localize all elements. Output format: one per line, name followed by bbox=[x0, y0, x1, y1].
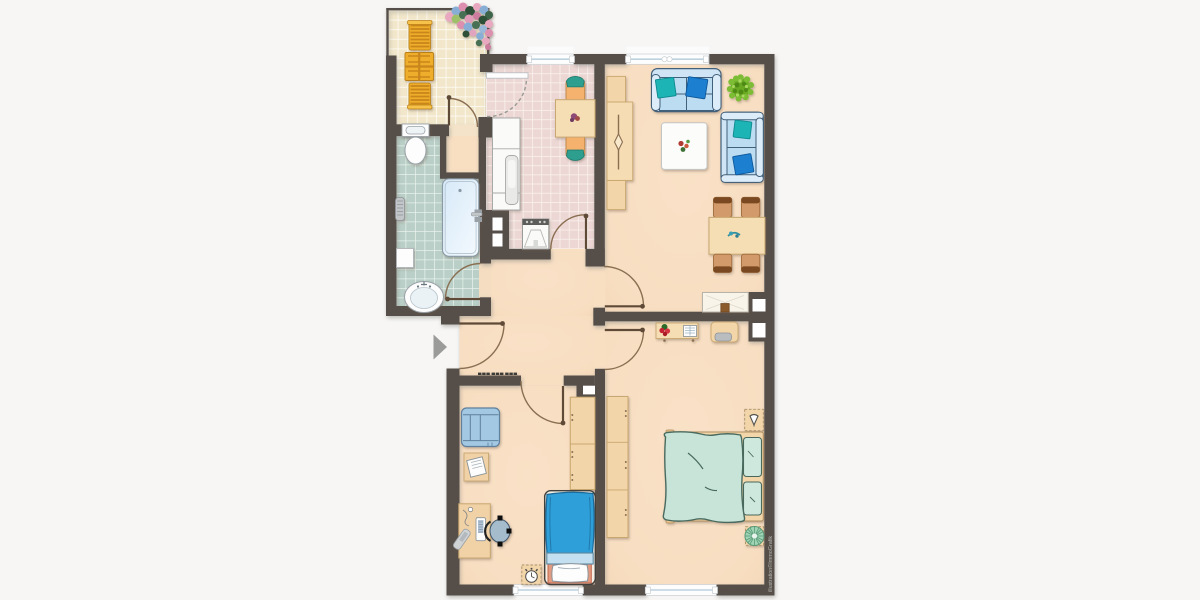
svg-text:illustration©ImmoGrafik: illustration©ImmoGrafik bbox=[767, 536, 774, 592]
